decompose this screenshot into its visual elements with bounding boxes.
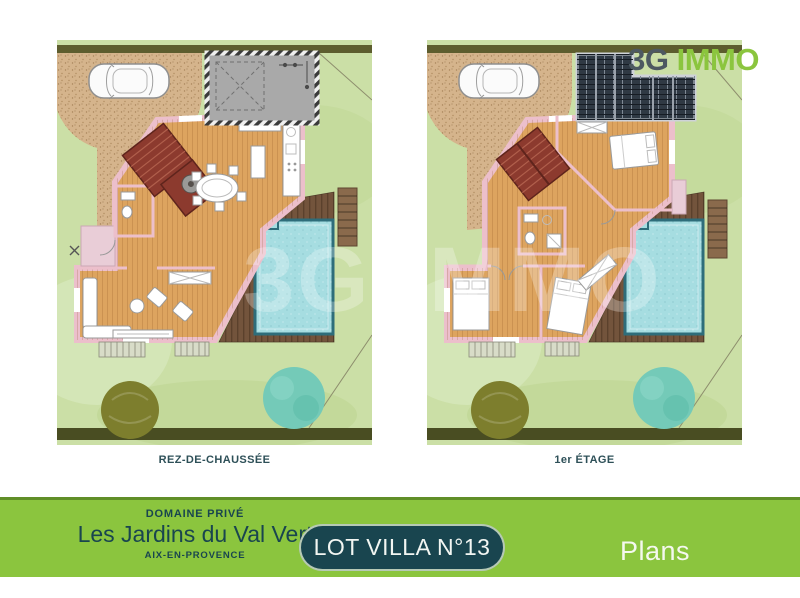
logo-immo: IMMO — [677, 42, 759, 77]
estate-type: DOMAINE PRIVÉ — [15, 508, 375, 520]
lot-badge: LOT VILLA N°13 — [299, 524, 505, 571]
hedge-bottom — [427, 428, 742, 440]
garage — [207, 53, 317, 123]
plan-label-ground: REZ-DE-CHAUSSÉE — [57, 454, 372, 466]
plan-ground-floor — [57, 40, 372, 445]
sofa — [83, 278, 97, 328]
tree-olive — [471, 381, 529, 439]
tree-teal — [263, 367, 325, 429]
footer-banner: DOMAINE PRIVÉ Les Jardins du Val Vert AI… — [0, 497, 800, 577]
pergola — [338, 188, 357, 246]
car-icon — [89, 63, 169, 99]
pool — [625, 220, 703, 334]
tree-olive — [101, 381, 159, 439]
logo-3g: 3G — [628, 42, 668, 77]
plan-first-floor — [427, 40, 742, 445]
plan-sheet: 3G IMMO 3G IMMO REZ-DE-CHAUSSÉE 1er ÉTAG… — [0, 0, 800, 598]
pool — [255, 220, 333, 334]
hedge-bottom — [57, 428, 372, 440]
tree-teal — [633, 367, 695, 429]
coffee-table — [130, 299, 144, 313]
brand-logo: 3G IMMO — [628, 42, 759, 78]
pergola — [708, 200, 727, 258]
ground-floor-drawing — [57, 40, 372, 445]
balcony — [672, 180, 686, 214]
page-title: Plans — [560, 536, 750, 567]
car-icon — [459, 63, 539, 99]
plan-label-first: 1er ÉTAGE — [427, 454, 742, 466]
master-bed — [609, 132, 658, 170]
bedroom-2-bed — [453, 278, 489, 330]
first-floor-drawing — [427, 40, 742, 445]
